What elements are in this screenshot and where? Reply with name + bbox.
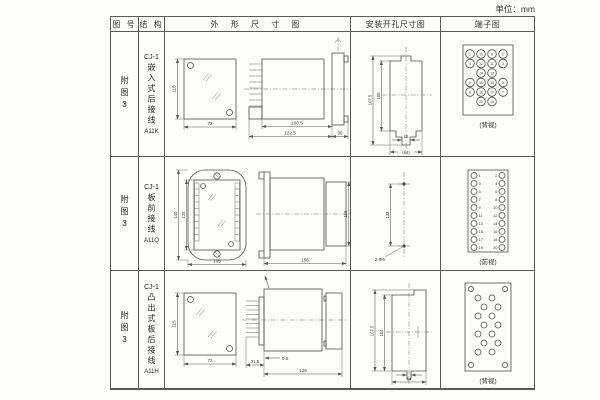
terminal-numbers: 2 10 9 1 4 12 11 3 14 13 6 16 15 5 8 18 … <box>469 52 504 104</box>
svg-text:8: 8 <box>469 90 471 94</box>
fig-no-cell-a11k: 附图3 <box>111 32 139 157</box>
svg-text:8: 8 <box>495 197 498 202</box>
svg-text:4: 4 <box>469 61 471 65</box>
svg-text:19: 19 <box>490 99 494 103</box>
structure-cell-a11q: CJ-1 板前接线 A11Q <box>139 157 165 271</box>
svg-text:18: 18 <box>479 90 483 94</box>
dim-front-height: 115 <box>171 84 176 92</box>
terminal-cell-a11h: (背视) <box>441 271 534 389</box>
header-install: 安装开孔尺寸图 <box>351 17 441 32</box>
svg-text:13: 13 <box>479 221 484 226</box>
terminal-circles <box>471 172 505 250</box>
svg-text:9: 9 <box>491 52 493 56</box>
dim-flange: 35 <box>337 130 343 135</box>
side-view: 100.5 122.5 35 <box>244 37 348 139</box>
structure-text: 嵌入式后接线 <box>146 63 157 126</box>
view-label: (前视) <box>479 257 496 266</box>
header-outline: 外 形 尺 寸 图 <box>165 17 351 32</box>
terminal-diagram-a11h: (背视) <box>441 271 534 389</box>
svg-text:12: 12 <box>479 61 483 65</box>
outline-cell-a11q: 140 125 105 156 115 <box>165 157 351 271</box>
dim-outer-height: 140 <box>172 210 177 218</box>
outline-drawing-a11q: 140 125 105 156 115 <box>166 158 350 270</box>
dim-hole-spacing: 133 <box>384 210 389 218</box>
terminal-circles <box>475 295 501 355</box>
model-code: A11H <box>144 369 159 375</box>
model-label: CJ-1 <box>144 184 159 191</box>
svg-text:16: 16 <box>479 80 483 84</box>
svg-text:1: 1 <box>502 52 504 56</box>
dim-front-height: 115 <box>171 319 176 327</box>
terminal-circles <box>466 49 508 105</box>
model-code: A11K <box>144 129 158 135</box>
front-view: 115 72 <box>171 293 236 367</box>
install-cell-a11k: 107.5 105 16 (64) <box>351 32 441 157</box>
view-label: (背视) <box>479 120 496 129</box>
fig-no-cell-a11h: 附图3 <box>111 271 139 389</box>
terminal-numbers: 12 34 56 78 910 1112 1314 1516 1718 1920 <box>479 173 499 250</box>
header-fig-no: 图 号 <box>111 17 139 32</box>
outline-drawing-a11k: 115 72 100.5 122.5 35 <box>166 33 350 156</box>
outline-cell-a11h: 115 72 9.5 31.5 126 <box>165 271 351 389</box>
dim-body-length: 126 <box>299 368 307 373</box>
svg-text:3: 3 <box>479 181 482 186</box>
install-drawing-a11h: 107.5 104 64 <box>352 271 440 389</box>
model-label: CJ-1 <box>144 54 159 61</box>
terminal-diagram-a11q: 12 34 56 78 910 1112 1314 1516 1718 1920… <box>441 158 534 270</box>
mounting-holes <box>468 286 507 367</box>
svg-text:6: 6 <box>469 80 471 84</box>
svg-text:16: 16 <box>493 229 498 234</box>
svg-text:14: 14 <box>479 71 483 75</box>
dim-front-width: 72 <box>207 121 213 126</box>
install-drawing-a11q: 133 2-Φ6 <box>352 158 440 270</box>
outline-drawing-a11h: 115 72 9.5 31.5 126 <box>166 271 350 389</box>
svg-text:19: 19 <box>479 245 484 250</box>
fig-no-cell-a11q: 附图3 <box>111 157 139 271</box>
svg-text:14: 14 <box>493 221 498 226</box>
dim-slot-width: 16 <box>403 134 408 139</box>
dim-side-length: 156 <box>301 257 309 262</box>
model-code: A11Q <box>144 238 159 244</box>
dim-terminal-depth: 31.5 <box>250 359 259 364</box>
front-view: 115 72 <box>171 59 236 130</box>
svg-text:12: 12 <box>493 213 498 218</box>
terminal-diagram-a11k: 2 10 9 1 4 12 11 3 14 13 6 16 15 5 8 18 … <box>441 33 534 156</box>
svg-text:18: 18 <box>493 237 498 242</box>
header-terminal: 端子图 <box>441 17 534 32</box>
dim-front-width: 105 <box>213 258 221 263</box>
svg-text:9: 9 <box>479 205 482 210</box>
svg-text:1: 1 <box>479 173 482 178</box>
fig-no-text: 附图3 <box>119 195 130 232</box>
structure-cell-a11k: CJ-1 嵌入式后接线 A11K <box>139 32 165 157</box>
install-cell-a11h: 107.5 104 64 <box>351 271 441 389</box>
svg-text:10: 10 <box>493 205 498 210</box>
outline-cell-a11k: 115 72 100.5 122.5 35 <box>165 32 351 157</box>
structure-text: 板前接线 <box>146 193 157 235</box>
svg-text:11: 11 <box>490 61 494 65</box>
install-drawing-a11k: 107.5 105 16 (64) <box>352 33 440 156</box>
spec-table: 图 号 结 构 外 形 尺 寸 图 安装开孔尺寸图 端子图 附图3 CJ-1 嵌… <box>110 16 535 390</box>
dim-offset: 9.5 <box>282 356 289 361</box>
svg-text:4: 4 <box>495 181 498 186</box>
svg-text:6: 6 <box>495 189 498 194</box>
svg-text:5: 5 <box>502 80 504 84</box>
dim-side-height: 115 <box>343 209 348 216</box>
view-label: (背视) <box>479 376 496 385</box>
svg-text:2: 2 <box>495 173 498 178</box>
fig-no-text: 附图3 <box>119 76 130 113</box>
header-structure: 结 构 <box>139 17 165 32</box>
fig-no-text: 附图3 <box>119 311 130 348</box>
hole-spec-label: 2-Φ6 <box>374 257 385 262</box>
install-cell-a11q: 133 2-Φ6 <box>351 157 441 271</box>
terminal-cell-a11k: 2 10 9 1 4 12 11 3 14 13 6 16 15 5 8 18 … <box>441 32 534 157</box>
svg-text:20: 20 <box>493 245 498 250</box>
svg-text:7: 7 <box>479 197 482 202</box>
svg-text:15: 15 <box>490 80 494 84</box>
dim-cutout-outer-h: 107.5 <box>367 94 372 105</box>
svg-text:11: 11 <box>479 213 484 218</box>
svg-text:13: 13 <box>490 71 494 75</box>
model-label: CJ-1 <box>144 284 159 291</box>
dim-depth-1: 100.5 <box>291 120 303 125</box>
dim-cutout-width: (64) <box>402 149 410 154</box>
front-view: 140 125 105 <box>172 170 245 267</box>
structure-text: 凸出式板后接线 <box>146 293 157 367</box>
side-view: 156 115 <box>256 172 350 266</box>
svg-text:3: 3 <box>502 61 504 65</box>
structure-cell-a11h: CJ-1 凸出式板后接线 A11H <box>139 271 165 389</box>
svg-text:17: 17 <box>479 237 484 242</box>
dim-front-width: 72 <box>207 358 213 363</box>
svg-text:17: 17 <box>490 90 494 94</box>
dim-inner-height: 125 <box>181 210 186 218</box>
terminal-cell-a11q: 12 34 56 78 910 1112 1314 1516 1718 1920… <box>441 157 534 271</box>
dim-cutout-inner-h: 104 <box>378 328 383 336</box>
svg-text:2: 2 <box>469 52 471 56</box>
dim-depth-2: 122.5 <box>284 130 296 135</box>
svg-text:20: 20 <box>479 99 483 103</box>
dim-cutout-inner-h: 105 <box>376 91 381 99</box>
dim-cutout-width: 64 <box>406 376 411 381</box>
side-view: 9.5 31.5 126 <box>242 276 346 377</box>
svg-text:10: 10 <box>479 52 483 56</box>
unit-label: 单位：mm <box>395 3 535 15</box>
svg-text:7: 7 <box>502 90 504 94</box>
svg-text:15: 15 <box>479 229 484 234</box>
dim-cutout-outer-h: 107.5 <box>369 325 374 336</box>
svg-text:5: 5 <box>479 189 482 194</box>
